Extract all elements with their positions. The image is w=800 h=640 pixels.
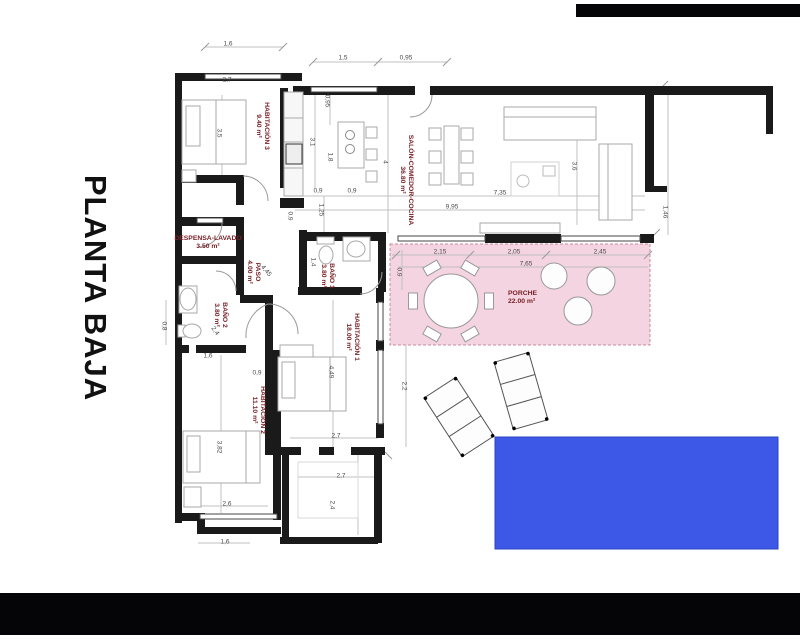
pool: [495, 437, 778, 549]
floorplan-page: PLANTA BAJA: [0, 0, 800, 640]
floorplan-drawing: [0, 0, 800, 640]
